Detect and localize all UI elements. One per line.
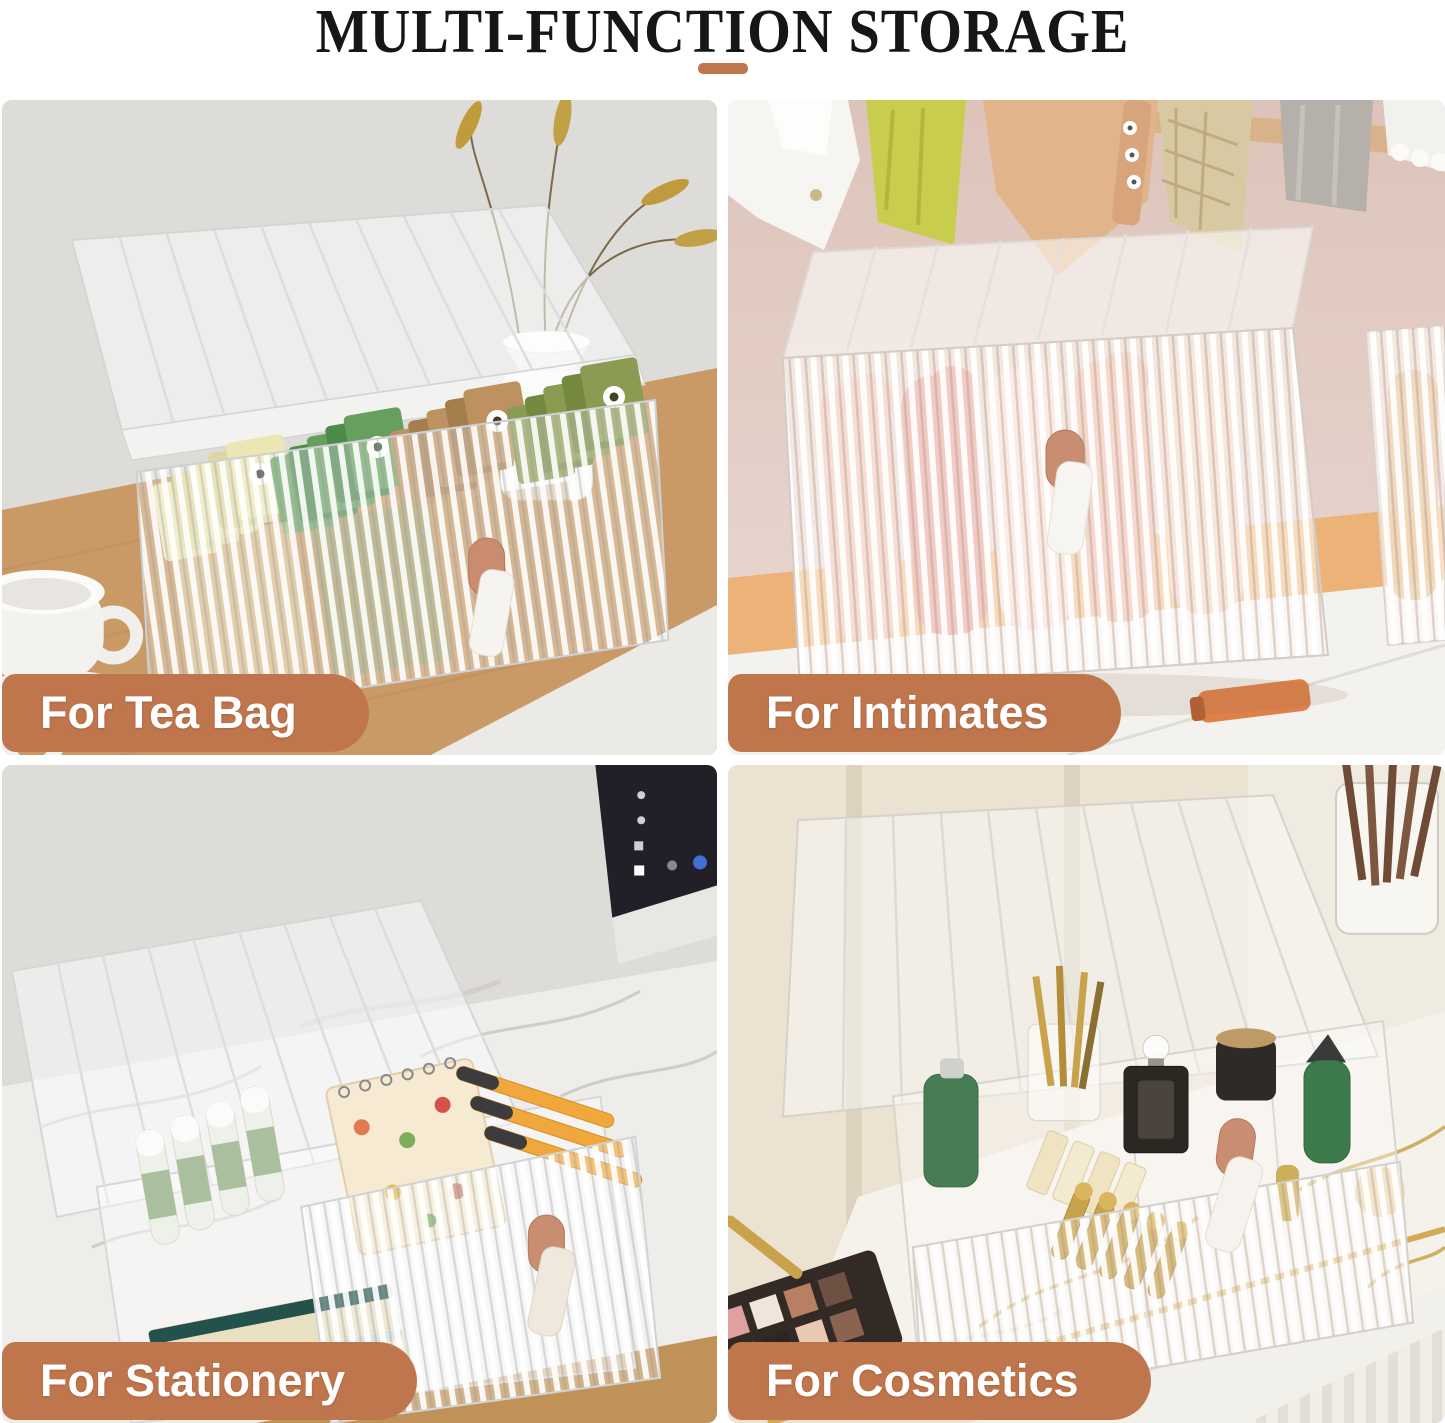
photo-stationery-organizer: For Stationery [2, 765, 717, 1423]
tea-bag-scene [2, 100, 717, 755]
photo-cosmetics-organizer: For Cosmetics [728, 765, 1445, 1423]
label-intimates-text: For Intimates [766, 687, 1049, 739]
product-collage-page: MULTI-FUNCTION STORAGE [0, 0, 1445, 1423]
header: MULTI-FUNCTION STORAGE [0, 0, 1445, 100]
intimates-scene [728, 100, 1445, 755]
page-title: MULTI-FUNCTION STORAGE [22, 0, 1424, 63]
brush-holder-vase [1336, 765, 1441, 934]
title-divider [698, 63, 748, 74]
black-jar [1216, 1028, 1276, 1100]
label-tea-bag-text: For Tea Bag [40, 687, 297, 739]
cosmetics-scene [728, 765, 1445, 1423]
photo-intimates-organizer: For Intimates [728, 100, 1445, 755]
green-bottle [924, 1058, 978, 1187]
label-cosmetics: For Cosmetics [728, 1342, 1151, 1420]
label-stationery: For Stationery [2, 1342, 417, 1420]
photo-tea-bag-organizer: For Tea Bag [2, 100, 717, 755]
intimates-box [768, 227, 1348, 717]
label-cosmetics-text: For Cosmetics [766, 1355, 1079, 1407]
label-intimates: For Intimates [728, 674, 1121, 752]
label-tea-bag: For Tea Bag [2, 674, 369, 752]
stationery-scene [2, 765, 717, 1423]
label-stationery-text: For Stationery [40, 1355, 345, 1407]
